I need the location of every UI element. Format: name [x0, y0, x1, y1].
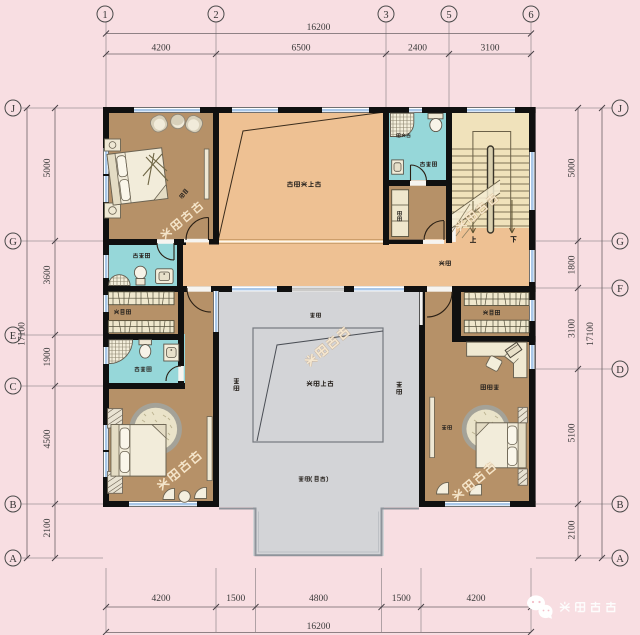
svg-text:16200: 16200	[307, 622, 331, 632]
svg-text:D: D	[616, 365, 624, 376]
svg-text:5000: 5000	[43, 158, 53, 177]
svg-text:3100: 3100	[568, 319, 578, 338]
svg-text:4500: 4500	[43, 429, 53, 448]
svg-text:J: J	[618, 104, 622, 115]
svg-text:1500: 1500	[392, 594, 411, 604]
svg-text:17100: 17100	[18, 322, 28, 346]
svg-text:A: A	[616, 554, 624, 565]
svg-text:5000: 5000	[568, 158, 578, 177]
svg-text:17100: 17100	[586, 322, 596, 346]
svg-text:2100: 2100	[43, 518, 53, 537]
svg-text:G: G	[616, 237, 624, 248]
svg-text:3: 3	[383, 10, 388, 21]
svg-text:B: B	[9, 500, 16, 511]
svg-text:5: 5	[446, 10, 451, 21]
svg-text:2100: 2100	[568, 520, 578, 539]
svg-text:2400: 2400	[408, 44, 427, 54]
svg-text:B: B	[616, 500, 623, 511]
svg-text:4200: 4200	[152, 594, 171, 604]
svg-text:4800: 4800	[309, 594, 328, 604]
svg-text:J: J	[11, 104, 15, 115]
svg-text:2: 2	[213, 10, 218, 21]
svg-text:F: F	[617, 284, 623, 295]
svg-text:5100: 5100	[568, 423, 578, 442]
svg-text:E: E	[10, 331, 16, 342]
svg-text:4200: 4200	[467, 594, 486, 604]
svg-text:6500: 6500	[292, 44, 311, 54]
svg-text:1500: 1500	[226, 594, 245, 604]
svg-text:C: C	[9, 382, 16, 393]
svg-text:1800: 1800	[568, 255, 578, 274]
svg-text:1: 1	[102, 10, 107, 21]
svg-text:6: 6	[528, 10, 533, 21]
svg-text:4200: 4200	[152, 44, 171, 54]
svg-text:A: A	[9, 554, 17, 565]
svg-text:G: G	[9, 237, 17, 248]
svg-text:3100: 3100	[481, 44, 500, 54]
svg-text:3600: 3600	[43, 265, 53, 284]
svg-text:1900: 1900	[43, 347, 53, 366]
svg-text:16200: 16200	[307, 23, 331, 33]
